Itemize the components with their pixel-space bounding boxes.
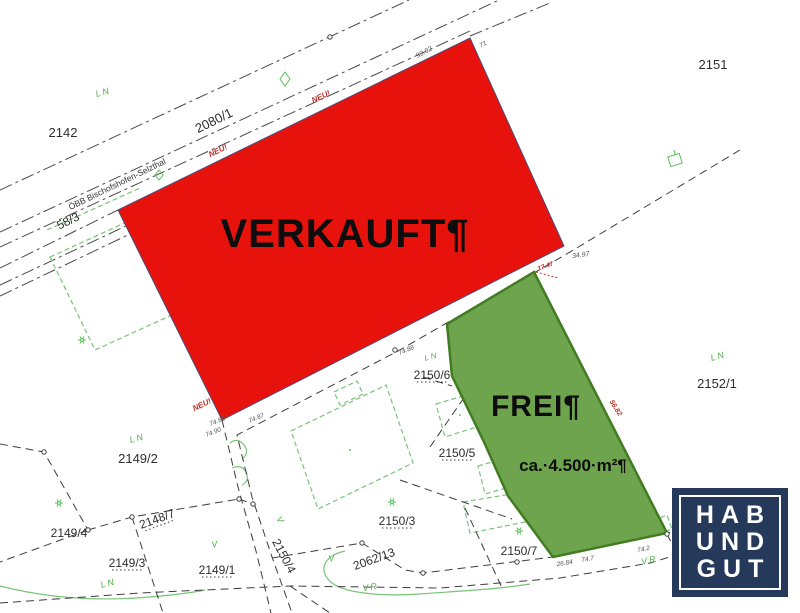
measure-56-82: 56.82: [608, 399, 623, 418]
neu-marker: NEU!: [207, 142, 229, 159]
measure-74-2: 74.2: [637, 545, 651, 555]
parcel-label-2149-1: 2149/1: [199, 563, 236, 577]
landuse-ln: LN: [423, 350, 439, 362]
free-zone-area: ca.·4.500·m²¶: [519, 456, 627, 475]
measure-74-90: 74.90: [205, 426, 223, 439]
hut-icon: [666, 149, 682, 167]
parcel-label-2080-1: 2080/1: [193, 105, 235, 136]
landuse-ln: LN: [99, 576, 117, 590]
landuse-v: V: [328, 552, 338, 563]
parcel-label-2149-4: 2149/4: [51, 526, 88, 540]
railway-diamond-icon: [280, 72, 290, 86]
measure-74-7: 74.7: [581, 555, 595, 564]
measure-26-84: 26.84: [555, 559, 574, 569]
site-plan-page: VERKAUFT¶ FREI¶ ca.·4.500·m²¶ 2142 2151 …: [0, 0, 800, 613]
logo-line-2: UND: [696, 529, 771, 556]
parcel-label-2150-6: 2150/6: [414, 368, 451, 382]
parcel-label-2150-5: 2150/5: [439, 446, 476, 460]
parcel-label-2149-2: 2149/2: [118, 451, 158, 466]
measure-34-97: 34.97: [572, 251, 591, 261]
parcel-label-2149-3: 2149/3: [109, 556, 146, 570]
landuse-vr: VR: [640, 553, 658, 566]
tree-icon: [55, 500, 63, 507]
parcel-label-2148-7: 2148/7: [137, 506, 177, 532]
landuse-v: V: [274, 515, 287, 527]
parcel-label-2150-7: 2150/7: [501, 544, 538, 558]
parcel-label-2150-3: 2150/3: [379, 514, 416, 528]
measure-71: 71: [478, 40, 488, 50]
landuse-ln: LN: [94, 85, 112, 99]
measure-74-88: 74.88: [398, 344, 416, 357]
logo-line-1: HAB: [696, 502, 771, 529]
free-zone-label: FREI¶: [491, 390, 581, 423]
parcel-label-2062-13: 2062/13: [351, 545, 397, 573]
sold-zone-label: VERKAUFT¶: [220, 212, 469, 256]
landuse-ln: LN: [128, 431, 146, 445]
landuse-ln: LN: [709, 349, 727, 363]
tree-icon: [515, 528, 523, 535]
measure-74-87: 74.87: [248, 412, 266, 425]
parcel-label-2151: 2151: [699, 57, 728, 72]
neu-marker: NEU!: [191, 396, 213, 413]
logo-line-3: GUT: [696, 556, 771, 583]
tree-icon: [78, 337, 86, 344]
parcel-label-58-3: 58/3: [54, 209, 81, 232]
landuse-v: V: [211, 538, 221, 549]
landuse-vr: VR: [362, 581, 380, 593]
parcel-label-2150-4: 2150/4: [269, 537, 299, 576]
parcel-label-2142: 2142: [49, 125, 78, 140]
parcel-label-2152-1: 2152/1: [697, 376, 737, 391]
neu-marker: NEU!: [310, 88, 332, 105]
measure-17-47: 17.47: [537, 260, 555, 272]
tree-icon: [388, 499, 396, 506]
hab-und-gut-logo: HAB UND GUT: [672, 488, 788, 597]
logo-text: HAB UND GUT: [696, 502, 764, 583]
